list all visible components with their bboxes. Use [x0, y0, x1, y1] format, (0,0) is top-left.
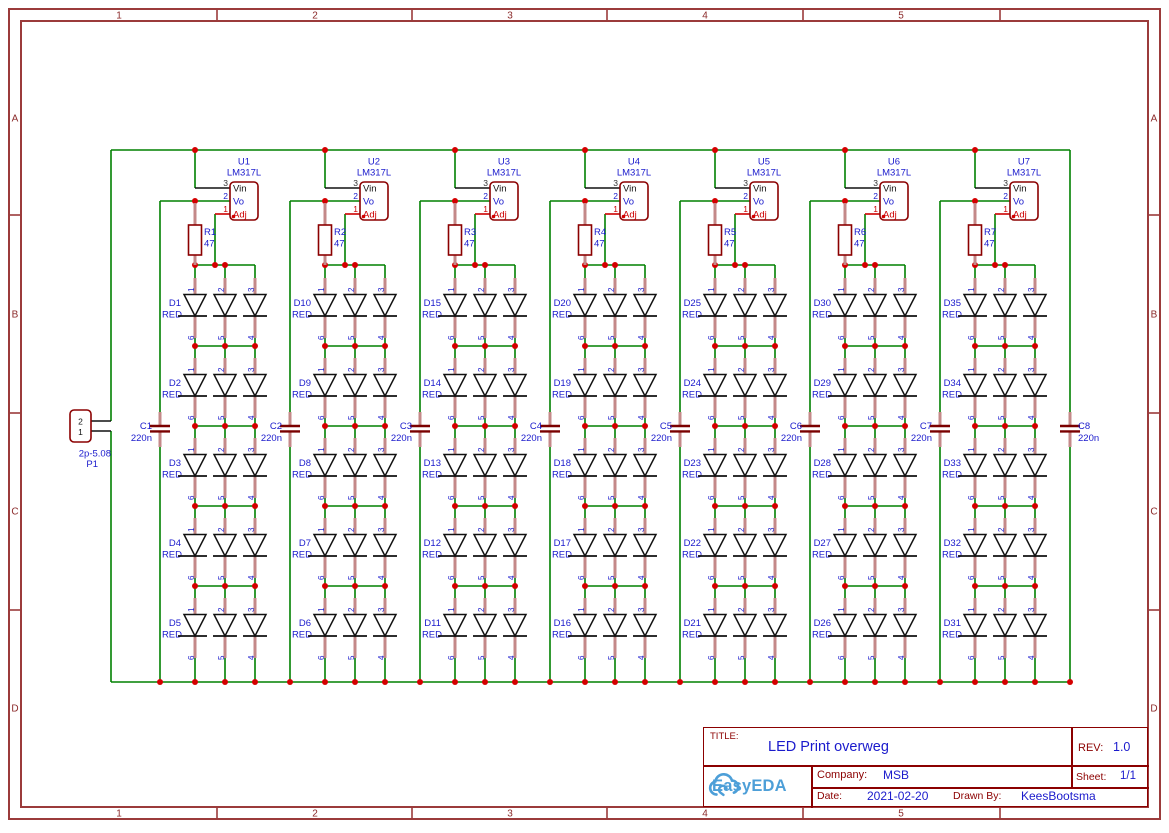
- led-D3[interactable]: D3RED162534: [162, 447, 267, 500]
- led-pin-number: 5: [867, 415, 876, 420]
- led-pin-number: 4: [377, 335, 386, 340]
- diode-symbol: [344, 615, 366, 637]
- led-D2[interactable]: D2RED162534: [162, 367, 267, 420]
- led-value: RED: [552, 310, 572, 321]
- led-value: RED: [552, 390, 572, 401]
- junction-dot: [212, 262, 218, 268]
- led-pin-number: 4: [247, 575, 256, 580]
- adj-pin-dot: [362, 215, 366, 219]
- junction-dot: [1002, 262, 1008, 268]
- led-ref: D16: [554, 618, 571, 629]
- led-pin-number: 1: [187, 367, 196, 372]
- capacitor-ref: C7: [920, 421, 932, 432]
- led-D10[interactable]: D10RED162534: [292, 287, 397, 340]
- led-pin-number: 5: [217, 415, 226, 420]
- led-D13[interactable]: D13RED162534: [422, 447, 527, 500]
- regulator-pin-name: Vo: [883, 197, 894, 208]
- led-value: RED: [812, 630, 832, 641]
- resistor-body: [969, 225, 982, 255]
- junction-dot: [512, 503, 518, 509]
- led-D33[interactable]: D33RED162534: [942, 447, 1047, 500]
- led-value: RED: [552, 550, 572, 561]
- regulator-pin-number: 1: [353, 204, 358, 214]
- diode-symbol: [244, 455, 266, 477]
- led-pin-number: 4: [507, 655, 516, 660]
- capacitor-C7[interactable]: C7220n: [911, 412, 950, 447]
- connector-P1[interactable]: 212p-5.08P1: [70, 410, 111, 470]
- led-D31[interactable]: D31RED162534: [942, 607, 1047, 660]
- led-D30[interactable]: D30RED162534: [812, 287, 917, 340]
- drawn-by-label: Drawn By:: [953, 790, 1001, 802]
- led-pin-number: 2: [737, 607, 746, 612]
- junction-dot: [772, 423, 778, 429]
- regulator-U3[interactable]: 3Vin2Vo1AdjU3LM317L: [455, 157, 521, 221]
- led-pin-number: 4: [897, 495, 906, 500]
- diode-symbol: [634, 295, 656, 317]
- diode-symbol: [864, 375, 886, 397]
- regulator-pin-name: Vin: [883, 184, 897, 195]
- frame-column-label: 2: [312, 11, 318, 22]
- resistor-ref: R4: [594, 227, 606, 238]
- junction-dot: [902, 679, 908, 685]
- diode-symbol: [214, 295, 236, 317]
- regulator-pin-name: Adj: [753, 210, 767, 221]
- junction-dot: [642, 583, 648, 589]
- capacitor-ref: C2: [270, 421, 282, 432]
- junction-dot: [287, 679, 293, 685]
- regulator-U1[interactable]: 3Vin2Vo1AdjU1LM317L: [195, 157, 261, 221]
- regulator-pin-number: 2: [223, 191, 228, 201]
- led-pin-number: 1: [967, 287, 976, 292]
- capacitor-ref: C4: [530, 421, 542, 432]
- led-pin-number: 4: [767, 495, 776, 500]
- diode-symbol: [894, 375, 916, 397]
- junction-dot: [742, 583, 748, 589]
- junction-dot: [872, 343, 878, 349]
- led-pin-number: 3: [507, 367, 516, 372]
- led-D12[interactable]: D12RED162534: [422, 527, 527, 580]
- led-D29[interactable]: D29RED162534: [812, 367, 917, 420]
- junction-dot: [772, 679, 778, 685]
- diode-symbol: [474, 535, 496, 557]
- led-pin-number: 5: [867, 335, 876, 340]
- junction-dot: [937, 679, 943, 685]
- junction-dot: [482, 503, 488, 509]
- frame-row-label: C: [1150, 507, 1157, 518]
- resistor-R1[interactable]: R147: [189, 203, 217, 265]
- led-pin-number: 6: [967, 335, 976, 340]
- led-D21[interactable]: D21RED162534: [682, 607, 787, 660]
- led-D18[interactable]: D18RED162534: [552, 447, 657, 500]
- regulator-pin-name: Vo: [233, 197, 244, 208]
- regulator-value: LM317L: [747, 168, 781, 179]
- led-pin-number: 3: [377, 607, 386, 612]
- led-pin-number: 2: [477, 607, 486, 612]
- led-ref: D15: [424, 298, 441, 309]
- led-pin-number: 6: [187, 335, 196, 340]
- led-pin-number: 2: [607, 287, 616, 292]
- resistor-body: [319, 225, 332, 255]
- led-D17[interactable]: D17RED162534: [552, 527, 657, 580]
- led-pin-number: 5: [477, 495, 486, 500]
- led-pin-number: 6: [967, 655, 976, 660]
- led-value: RED: [942, 310, 962, 321]
- led-value: RED: [292, 630, 312, 641]
- led-value: RED: [162, 550, 182, 561]
- led-D35[interactable]: D35RED162534: [942, 287, 1047, 340]
- junction-dot: [482, 679, 488, 685]
- diode-symbol: [994, 455, 1016, 477]
- led-D19[interactable]: D19RED162534: [552, 367, 657, 420]
- diode-symbol: [574, 455, 596, 477]
- regulator-ref: U7: [1018, 157, 1030, 168]
- date-value: 2021-02-20: [867, 789, 928, 803]
- regulator-U4[interactable]: 3Vin2Vo1AdjU4LM317L: [585, 157, 651, 221]
- diode-symbol: [964, 295, 986, 317]
- diode-symbol: [314, 535, 336, 557]
- led-pin-number: 6: [967, 575, 976, 580]
- led-ref: D20: [554, 298, 571, 309]
- capacitor-ref: C5: [660, 421, 672, 432]
- junction-dot: [352, 503, 358, 509]
- diode-symbol: [834, 375, 856, 397]
- capacitor-C2[interactable]: C2220n: [261, 412, 300, 447]
- diode-symbol: [994, 535, 1016, 557]
- led-D16[interactable]: D16RED162534: [552, 607, 657, 660]
- resistor-R6[interactable]: R647: [839, 203, 867, 265]
- led-D26[interactable]: D26RED162534: [812, 607, 917, 660]
- junction-dot: [842, 147, 848, 153]
- capacitor-C8[interactable]: C8220n: [1060, 412, 1099, 447]
- junction-dot: [452, 679, 458, 685]
- led-D7[interactable]: D7RED162534: [292, 527, 397, 580]
- led-pin-number: 3: [767, 447, 776, 452]
- junction-dot: [582, 679, 588, 685]
- junction-dot: [352, 262, 358, 268]
- capacitor-C4[interactable]: C4220n: [521, 412, 560, 447]
- led-pin-number: 4: [1027, 335, 1036, 340]
- led-pin-number: 5: [217, 655, 226, 660]
- led-ref: D17: [554, 538, 571, 549]
- regulator-U5[interactable]: 3Vin2Vo1AdjU5LM317L: [715, 157, 781, 221]
- capacitor-C6[interactable]: C6220n: [781, 412, 820, 447]
- led-pin-number: 5: [607, 495, 616, 500]
- led-pin-number: 6: [577, 495, 586, 500]
- regulator-pin-name: Adj: [1013, 210, 1027, 221]
- diode-symbol: [634, 615, 656, 637]
- diode-symbol: [314, 455, 336, 477]
- led-pin-number: 1: [967, 447, 976, 452]
- regulator-pin-number: 2: [1003, 191, 1008, 201]
- regulator-ref: U2: [368, 157, 380, 168]
- led-ref: D11: [424, 618, 441, 629]
- led-pin-number: 6: [317, 495, 326, 500]
- diode-symbol: [574, 375, 596, 397]
- led-ref: D21: [684, 618, 701, 629]
- led-pin-number: 2: [997, 447, 1006, 452]
- led-pin-number: 4: [247, 415, 256, 420]
- regulator-pin-name: Vo: [363, 197, 374, 208]
- regulator-pin-name: Adj: [363, 210, 377, 221]
- diode-symbol: [344, 455, 366, 477]
- junction-dot: [252, 583, 258, 589]
- junction-dot: [1032, 583, 1038, 589]
- junction-dot: [382, 503, 388, 509]
- led-pin-number: 1: [837, 527, 846, 532]
- led-D15[interactable]: D15RED162534: [422, 287, 527, 340]
- led-D9[interactable]: D9RED162534: [292, 367, 397, 420]
- led-pin-number: 6: [447, 335, 456, 340]
- diode-symbol: [1024, 615, 1046, 637]
- diode-symbol: [994, 615, 1016, 637]
- diode-symbol: [504, 615, 526, 637]
- regulator-pin-name: Adj: [233, 210, 247, 221]
- led-D1[interactable]: D1RED162534: [162, 287, 267, 340]
- led-pin-number: 2: [867, 447, 876, 452]
- led-ref: D4: [169, 538, 181, 549]
- led-D24[interactable]: D24RED162534: [682, 367, 787, 420]
- junction-dot: [342, 262, 348, 268]
- junction-dot: [222, 503, 228, 509]
- junction-dot: [222, 343, 228, 349]
- junction-dot: [642, 503, 648, 509]
- regulator-pin-number: 1: [483, 204, 488, 214]
- diode-symbol: [474, 375, 496, 397]
- regulator-ref: U5: [758, 157, 770, 168]
- led-D11[interactable]: D11RED162534: [422, 607, 527, 660]
- led-pin-number: 2: [217, 607, 226, 612]
- junction-dot: [972, 147, 978, 153]
- diode-symbol: [704, 615, 726, 637]
- rev-value: 1.0: [1113, 740, 1130, 754]
- led-value: RED: [552, 630, 572, 641]
- diode-symbol: [964, 455, 986, 477]
- led-pin-number: 2: [217, 367, 226, 372]
- led-pin-number: 2: [477, 447, 486, 452]
- schematic-canvas[interactable]: 1122334455AABBCCDD212p-5.08P1C8220n3Vin2…: [0, 0, 1169, 828]
- junction-dot: [252, 503, 258, 509]
- resistor-value: 47: [594, 239, 605, 250]
- resistor-body: [449, 225, 462, 255]
- junction-dot: [452, 147, 458, 153]
- led-ref: D9: [299, 378, 311, 389]
- led-pin-number: 3: [1027, 447, 1036, 452]
- led-pin-number: 6: [447, 495, 456, 500]
- junction-dot: [322, 147, 328, 153]
- capacitor-ref: C6: [790, 421, 802, 432]
- diode-symbol: [214, 375, 236, 397]
- resistor-R5[interactable]: R547: [709, 203, 737, 265]
- led-pin-number: 5: [607, 655, 616, 660]
- led-pin-number: 5: [347, 655, 356, 660]
- junction-dot: [712, 679, 718, 685]
- capacitor-C3[interactable]: C3220n: [391, 412, 430, 447]
- diode-symbol: [574, 615, 596, 637]
- led-pin-number: 6: [577, 575, 586, 580]
- junction-dot: [612, 262, 618, 268]
- resistor-R4[interactable]: R447: [579, 203, 607, 265]
- led-pin-number: 3: [897, 287, 906, 292]
- led-D14[interactable]: D14RED162534: [422, 367, 527, 420]
- led-pin-number: 5: [217, 575, 226, 580]
- diode-symbol: [704, 375, 726, 397]
- led-pin-number: 4: [247, 335, 256, 340]
- led-D8[interactable]: D8RED162534: [292, 447, 397, 500]
- led-value: RED: [422, 470, 442, 481]
- led-D5[interactable]: D5RED162534: [162, 607, 267, 660]
- led-pin-number: 6: [707, 335, 716, 340]
- regulator-U2[interactable]: 3Vin2Vo1AdjU2LM317L: [325, 157, 391, 221]
- capacitor-C5[interactable]: C5220n: [651, 412, 690, 447]
- junction-dot: [612, 583, 618, 589]
- resistor-ref: R5: [724, 227, 736, 238]
- led-pin-number: 3: [247, 527, 256, 532]
- diode-symbol: [994, 375, 1016, 397]
- led-pin-number: 4: [507, 495, 516, 500]
- junction-dot: [712, 343, 718, 349]
- led-pin-number: 5: [737, 575, 746, 580]
- led-value: RED: [162, 470, 182, 481]
- led-pin-number: 1: [317, 447, 326, 452]
- frame-row-label: A: [12, 114, 19, 125]
- diode-symbol: [214, 455, 236, 477]
- led-pin-number: 6: [447, 655, 456, 660]
- led-pin-number: 4: [767, 335, 776, 340]
- led-ref: D13: [424, 458, 441, 469]
- led-pin-number: 1: [577, 287, 586, 292]
- diode-symbol: [474, 615, 496, 637]
- led-D23[interactable]: D23RED162534: [682, 447, 787, 500]
- diode-symbol: [244, 615, 266, 637]
- led-pin-number: 5: [347, 415, 356, 420]
- led-pin-number: 4: [637, 335, 646, 340]
- frame-column-label: 4: [702, 809, 708, 820]
- diode-symbol: [444, 535, 466, 557]
- led-pin-number: 4: [247, 655, 256, 660]
- led-pin-number: 4: [377, 495, 386, 500]
- led-D22[interactable]: D22RED162534: [682, 527, 787, 580]
- resistor-R7[interactable]: R747: [969, 203, 997, 265]
- frame-row-label: B: [12, 310, 19, 321]
- regulator-pin-name: Adj: [883, 210, 897, 221]
- junction-dot: [222, 423, 228, 429]
- regulator-U6[interactable]: 3Vin2Vo1AdjU6LM317L: [845, 157, 911, 221]
- resistor-body: [709, 225, 722, 255]
- junction-dot: [742, 503, 748, 509]
- led-pin-number: 6: [707, 575, 716, 580]
- led-D6[interactable]: D6RED162534: [292, 607, 397, 660]
- led-pin-number: 1: [317, 607, 326, 612]
- led-D4[interactable]: D4RED162534: [162, 527, 267, 580]
- led-pin-number: 4: [637, 575, 646, 580]
- led-pin-number: 2: [737, 367, 746, 372]
- diode-symbol: [184, 615, 206, 637]
- regulator-pin-name: Adj: [493, 210, 507, 221]
- led-D27[interactable]: D27RED162534: [812, 527, 917, 580]
- led-ref: D33: [944, 458, 961, 469]
- junction-dot: [352, 423, 358, 429]
- led-pin-number: 3: [507, 447, 516, 452]
- led-pin-number: 6: [707, 415, 716, 420]
- led-pin-number: 6: [707, 495, 716, 500]
- diode-symbol: [314, 295, 336, 317]
- led-pin-number: 2: [737, 287, 746, 292]
- led-ref: D5: [169, 618, 181, 629]
- diode-symbol: [444, 615, 466, 637]
- junction-dot: [512, 583, 518, 589]
- easyeda-logo-text: EasyEDA: [712, 777, 787, 796]
- junction-dot: [872, 423, 878, 429]
- led-D32[interactable]: D32RED162534: [942, 527, 1047, 580]
- junction-dot: [842, 583, 848, 589]
- junction-dot: [192, 423, 198, 429]
- diode-symbol: [634, 455, 656, 477]
- diode-symbol: [604, 535, 626, 557]
- resistor-ref: R1: [204, 227, 216, 238]
- led-pin-number: 4: [507, 415, 516, 420]
- led-pin-number: 3: [767, 367, 776, 372]
- title-block: TITLE: LED Print overweg REV: 1.0 Compan…: [703, 727, 1148, 807]
- junction-dot: [842, 343, 848, 349]
- junction-dot: [512, 423, 518, 429]
- junction-dot: [972, 423, 978, 429]
- diode-symbol: [444, 295, 466, 317]
- led-ref: D29: [814, 378, 831, 389]
- led-D28[interactable]: D28RED162534: [812, 447, 917, 500]
- led-pin-number: 3: [897, 367, 906, 372]
- led-pin-number: 6: [837, 655, 846, 660]
- led-pin-number: 2: [607, 527, 616, 532]
- led-pin-number: 5: [867, 575, 876, 580]
- regulator-U7[interactable]: 3Vin2Vo1AdjU7LM317L: [975, 157, 1041, 221]
- junction-dot: [772, 583, 778, 589]
- junction-dot: [582, 423, 588, 429]
- led-pin-number: 2: [997, 607, 1006, 612]
- led-pin-number: 1: [967, 527, 976, 532]
- led-pin-number: 5: [867, 655, 876, 660]
- junction-dot: [582, 503, 588, 509]
- led-pin-number: 2: [347, 447, 356, 452]
- led-D20[interactable]: D20RED162534: [552, 287, 657, 340]
- led-pin-number: 2: [607, 607, 616, 612]
- title-block-divider: [1071, 728, 1073, 787]
- diode-symbol: [474, 295, 496, 317]
- led-ref: D3: [169, 458, 181, 469]
- frame-row-label: C: [11, 507, 18, 518]
- led-pin-number: 4: [637, 415, 646, 420]
- sheet-label: Sheet:: [1076, 771, 1106, 783]
- diode-symbol: [374, 375, 396, 397]
- led-D25[interactable]: D25RED162534: [682, 287, 787, 340]
- resistor-R2[interactable]: R247: [319, 203, 347, 265]
- junction-dot: [1032, 423, 1038, 429]
- diode-symbol: [604, 375, 626, 397]
- led-pin-number: 2: [607, 367, 616, 372]
- junction-dot: [612, 423, 618, 429]
- regulator-pin-name: Vin: [233, 184, 247, 195]
- rev-label: REV:: [1078, 742, 1103, 754]
- led-pin-number: 6: [577, 415, 586, 420]
- led-pin-number: 5: [997, 655, 1006, 660]
- junction-dot: [712, 503, 718, 509]
- led-D34[interactable]: D34RED162534: [942, 367, 1047, 420]
- junction-dot: [612, 503, 618, 509]
- diode-symbol: [894, 455, 916, 477]
- regulator-pin-number: 1: [1003, 204, 1008, 214]
- resistor-R3[interactable]: R347: [449, 203, 477, 265]
- capacitor-C1[interactable]: C1220n: [131, 412, 170, 447]
- regulator-pin-number: 2: [743, 191, 748, 201]
